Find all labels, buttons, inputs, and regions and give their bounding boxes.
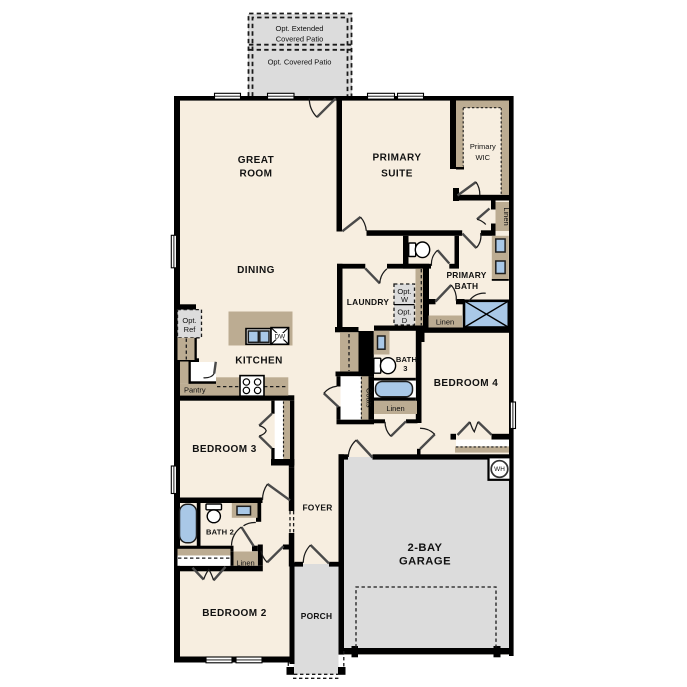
svg-text:DINING: DINING: [237, 265, 275, 276]
svg-text:GARAGE: GARAGE: [399, 556, 451, 568]
svg-text:BEDROOM 4: BEDROOM 4: [434, 378, 499, 389]
svg-text:WH: WH: [494, 466, 505, 473]
svg-text:Opt. Extended: Opt. Extended: [276, 24, 324, 33]
svg-text:PRIMARY: PRIMARY: [373, 153, 422, 164]
svg-text:BATH 2: BATH 2: [206, 528, 234, 537]
svg-text:W: W: [401, 295, 409, 304]
svg-text:BEDROOM 2: BEDROOM 2: [202, 608, 267, 619]
svg-text:KITCHEN: KITCHEN: [235, 355, 283, 366]
svg-text:GREAT: GREAT: [238, 155, 275, 166]
svg-text:SUITE: SUITE: [381, 169, 413, 180]
svg-text:LAUNDRY: LAUNDRY: [347, 297, 390, 307]
svg-text:PORCH: PORCH: [301, 611, 333, 621]
svg-text:BATH: BATH: [396, 355, 417, 364]
svg-text:Primary: Primary: [470, 142, 496, 151]
svg-text:Covered Patio: Covered Patio: [276, 34, 324, 43]
svg-text:FOYER: FOYER: [302, 502, 332, 512]
svg-text:Pantry: Pantry: [184, 385, 206, 394]
svg-text:BEDROOM 3: BEDROOM 3: [192, 444, 257, 455]
svg-text:D: D: [402, 316, 408, 325]
svg-text:Linen: Linen: [236, 558, 254, 567]
svg-text:Ref: Ref: [184, 325, 197, 334]
svg-text:ROOM: ROOM: [240, 169, 273, 180]
svg-text:Linen: Linen: [386, 404, 404, 413]
svg-text:3: 3: [403, 364, 407, 373]
svg-text:Linen: Linen: [502, 207, 511, 225]
svg-text:PRIMARY: PRIMARY: [446, 270, 486, 280]
svg-text:Linen: Linen: [436, 318, 454, 327]
svg-text:Coats: Coats: [364, 388, 373, 408]
svg-text:Opt. Covered Patio: Opt. Covered Patio: [268, 57, 332, 66]
svg-text:2-BAY: 2-BAY: [407, 542, 442, 554]
svg-text:Opt.: Opt.: [182, 316, 196, 325]
svg-text:BATH: BATH: [455, 281, 479, 291]
svg-text:WIC: WIC: [476, 153, 491, 162]
svg-text:DW: DW: [274, 334, 286, 341]
